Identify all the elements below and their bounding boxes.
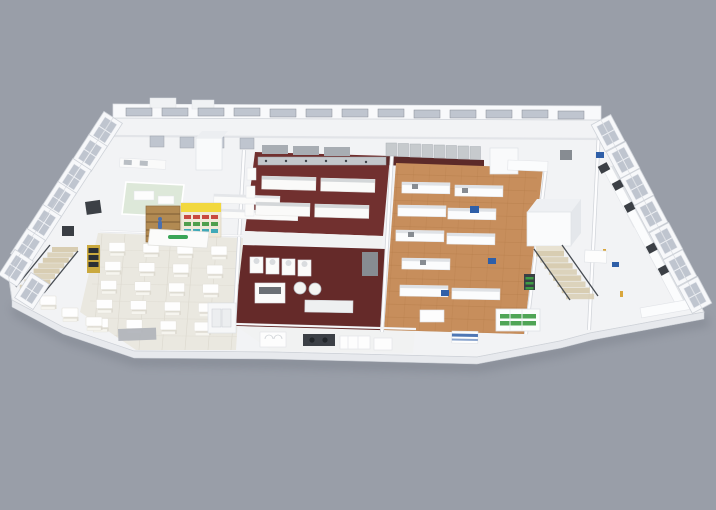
lab-bench: [396, 230, 444, 242]
white-table: [584, 250, 607, 263]
lab-bench: [447, 233, 495, 245]
lab-bench: [402, 182, 450, 194]
dark-machine: [62, 226, 74, 236]
kitchen-bench: [262, 176, 316, 190]
vestibule: [208, 303, 236, 333]
person-figure: [158, 217, 162, 229]
kettle: [294, 282, 306, 294]
steel-table: [305, 300, 353, 313]
white-table: [420, 310, 444, 322]
cold-room-box: [527, 199, 581, 246]
kitchen-bench: [315, 204, 369, 218]
mint-room-table: [134, 191, 154, 200]
entrance-mat: [118, 328, 156, 341]
display-case: [260, 332, 286, 347]
lab-bench: [398, 205, 446, 217]
retail-shelf: [87, 245, 100, 273]
roof-bump: [192, 100, 214, 109]
kitchen-bench: [256, 202, 310, 216]
tall-white-block: [196, 138, 222, 170]
plant-shelf: [524, 274, 535, 290]
cabinet: [374, 338, 392, 350]
white-bench-back: [508, 160, 548, 171]
kitchen-bench: [321, 178, 375, 192]
instrument-gray: [560, 150, 572, 160]
kettle: [309, 283, 321, 295]
dark-machine: [85, 200, 102, 215]
cooking-line: [258, 157, 386, 165]
lab-bench: [452, 288, 500, 300]
oven-door: [259, 287, 281, 294]
blue-striped-counter: [452, 331, 478, 343]
kiosk-logo: [168, 235, 188, 239]
fridge: [362, 252, 378, 276]
floorplan-render: [0, 0, 716, 510]
roof-bump: [150, 98, 176, 108]
cabinet: [340, 336, 370, 349]
plant-canopy: [496, 309, 540, 331]
mint-room-table: [158, 196, 174, 204]
cooktop: [303, 334, 335, 346]
lab-bench: [400, 285, 448, 297]
